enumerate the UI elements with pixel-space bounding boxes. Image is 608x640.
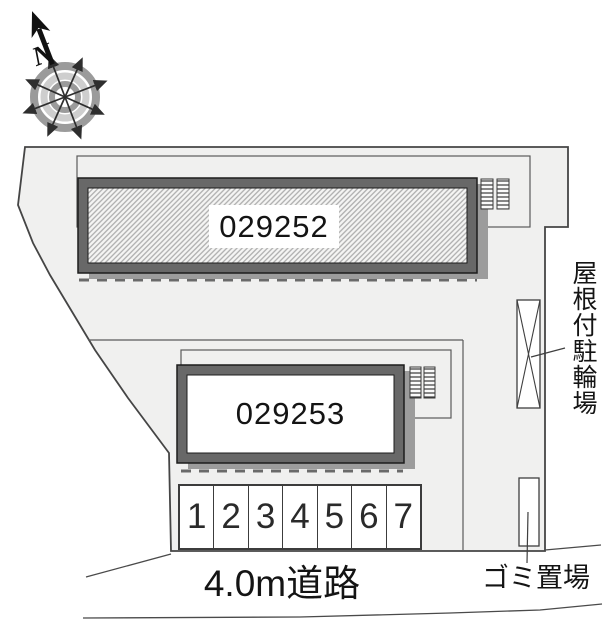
north-arrow-icon: N [16,8,62,73]
parking-row: 1 2 3 4 5 6 7 [178,484,422,550]
building-1-label: 029252 [209,205,339,248]
covered-bicycle-parking-label: 屋根付駐輪場 [567,260,599,420]
road-edge-lower [83,604,602,618]
road-edge-upper-right [545,545,601,550]
parking-space-2: 2 [214,486,248,548]
parking-space-1: 1 [180,486,214,548]
parking-space-3: 3 [249,486,283,548]
parking-space-6: 6 [352,486,386,548]
road-edge-upper-left [86,554,171,577]
bicycle-parking-marker [517,300,540,408]
compass-icon: N [9,8,120,153]
garbage-area-marker [519,478,539,546]
compass-rays [9,41,120,152]
parking-space-5: 5 [318,486,352,548]
parking-space-7: 7 [387,486,420,548]
site-plan: N 029252 029253 1 2 3 4 5 6 7 4.0m道路 ゴミ置… [0,0,608,640]
garbage-area-label: ゴミ置場 [474,562,598,594]
parking-space-4: 4 [283,486,317,548]
road-label: 4.0m道路 [160,563,404,605]
building-2-label: 029253 [187,393,394,435]
